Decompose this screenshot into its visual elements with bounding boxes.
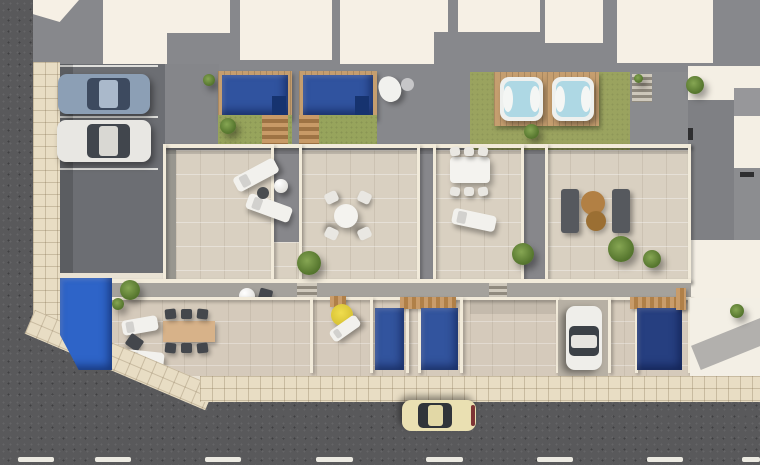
wood-wall-stub [676, 288, 686, 310]
lower-pool-1 [375, 308, 404, 370]
street-car-yellow-taillight [471, 405, 475, 426]
lane-dash-8 [742, 457, 760, 462]
roof-white-8 [617, 0, 713, 63]
roof-white-5 [430, 0, 448, 32]
palm-terrace-2 [297, 251, 321, 275]
right-patio-block-1 [688, 100, 734, 240]
hot-tub-2 [552, 77, 594, 121]
hot-tub-1 [500, 77, 543, 121]
lane-dash-7 [647, 457, 683, 462]
side-table-1 [257, 187, 269, 199]
garden-dining-table [163, 321, 215, 342]
lower-pool-3 [637, 308, 682, 370]
right-patio-block-2 [734, 168, 760, 240]
patio-shrub [203, 74, 215, 86]
rooftop-pool-2-step [355, 96, 369, 115]
garden-chair-5 [181, 343, 192, 353]
right-window-slot-1 [688, 128, 693, 140]
round-rug-2 [586, 211, 606, 231]
garden-tree [120, 280, 140, 300]
lower-pool-2 [421, 308, 458, 370]
palm-top-right [686, 76, 704, 94]
lane-dash-2 [95, 457, 131, 462]
roof-white-2 [133, 0, 230, 33]
sofa-right [612, 189, 630, 233]
terrace-top-wall [163, 144, 691, 148]
party-wall-5 [433, 144, 436, 283]
palm-walkway-3 [512, 243, 534, 265]
hot-tub-1-seat-right [530, 86, 540, 112]
party-wall-7 [545, 144, 548, 283]
garden-chair-2 [181, 309, 192, 319]
dining-chair-w1 [449, 146, 460, 156]
right-roof-block-2 [734, 88, 760, 116]
scene-canvas [0, 0, 760, 465]
twig-top-right [634, 74, 643, 83]
terrace-edge-strip [165, 150, 176, 283]
sofa-left [561, 189, 579, 233]
sidewalk-left [33, 62, 60, 330]
lower-wall-3 [370, 297, 373, 373]
rooftop-pool-1-step [272, 96, 286, 115]
roof-white-7 [545, 0, 603, 43]
lane-dash-6 [537, 457, 573, 462]
lower-wall-2 [310, 297, 313, 373]
parking-line-3 [58, 168, 158, 170]
roof-white-3 [240, 0, 332, 60]
garden-chair-6 [197, 342, 209, 353]
garden-bush [112, 298, 124, 310]
dining-chair-w4 [449, 186, 460, 196]
parked-car-white [57, 120, 151, 162]
lane-dash-4 [316, 457, 353, 462]
party-wall-4 [417, 144, 420, 283]
dining-chair-w3 [477, 146, 488, 156]
dining-chair-w6 [477, 186, 488, 196]
patio-round-table [401, 78, 414, 91]
sidewalk-bottom [200, 376, 760, 402]
lane-dash-5 [426, 457, 463, 462]
roof-white-4 [340, 0, 434, 64]
bistro-table [334, 204, 358, 228]
driveway-car-white-roof [571, 335, 596, 348]
right-yard-plant [730, 304, 744, 318]
street-car-yellow [402, 400, 476, 431]
parking-line-1 [58, 65, 158, 67]
lane-dash-1 [18, 457, 54, 462]
right-window-slot-2 [740, 172, 754, 177]
garden-chair-1 [165, 308, 177, 319]
roof-white-6 [458, 0, 540, 32]
right-roof-block-3 [734, 116, 760, 168]
street-car-yellow-roof [428, 405, 443, 427]
driveway-car-white [566, 306, 602, 370]
rooftop-lawn-tree-1 [220, 118, 236, 134]
party-wall-1 [163, 144, 166, 283]
parking-line-2 [58, 116, 158, 118]
garden-chair-3 [197, 308, 209, 319]
right-roof-block-4 [688, 240, 760, 298]
lawn-plant [524, 124, 539, 139]
dining-chair-w5 [464, 187, 474, 196]
lower-wall-8 [608, 297, 611, 373]
lower-wall-6 [460, 297, 463, 373]
dining-chair-w2 [464, 147, 474, 156]
parked-car-silver-roof [99, 80, 117, 108]
palm-terrace-4 [608, 236, 634, 262]
light-sphere-1 [274, 179, 288, 193]
hot-tub-2-seat-left [555, 86, 565, 112]
lane-dash-3 [205, 457, 241, 462]
plant-terrace-4b [643, 250, 661, 268]
garden-chair-4 [165, 342, 177, 353]
party-wall-8 [688, 144, 691, 283]
dining-table-white [450, 157, 490, 183]
parked-car-silver [58, 74, 150, 114]
parked-car-white-roof [99, 126, 118, 155]
